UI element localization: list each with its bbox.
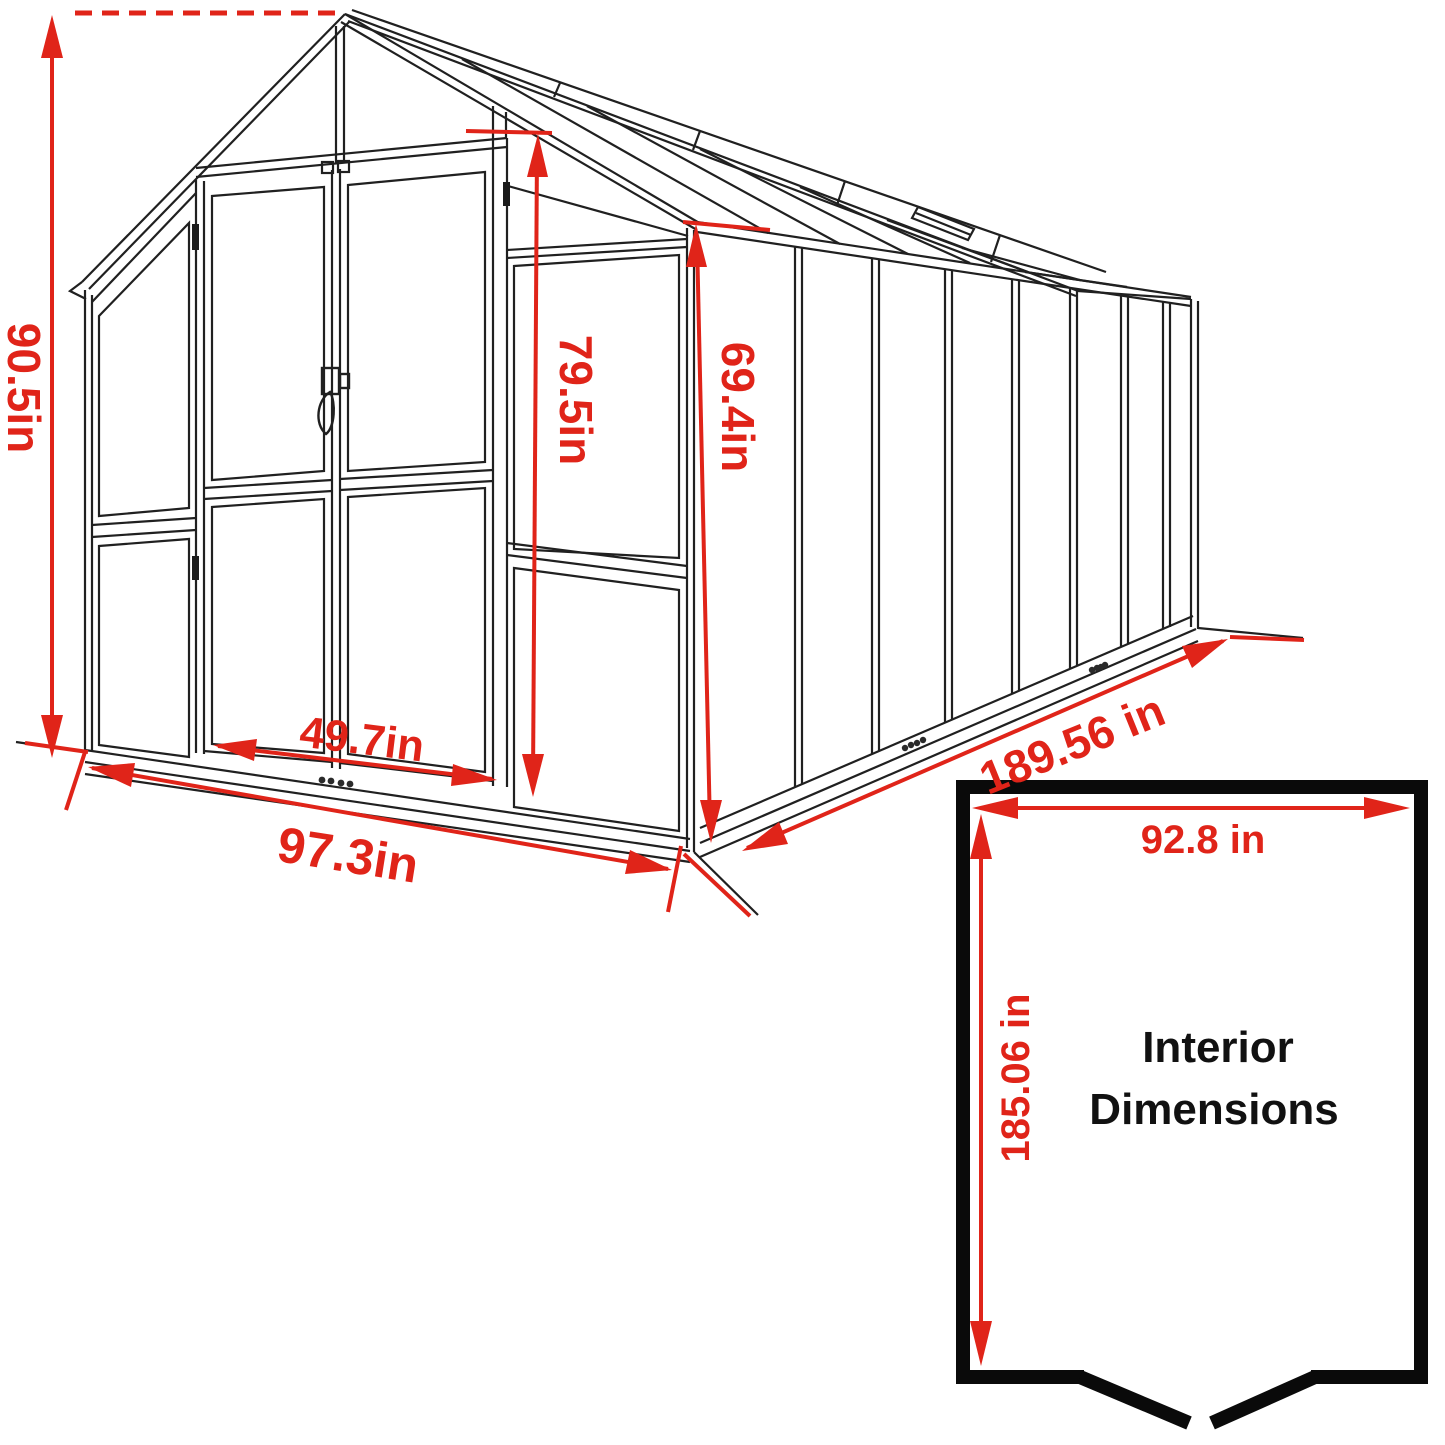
- dimension-label-interior-length: 185.06 in: [996, 993, 1036, 1162]
- door-hinges: [192, 182, 510, 580]
- greenhouse-line-drawing: [0, 0, 1445, 1445]
- dim-door-height: [466, 131, 552, 780]
- interior-dimension-lines: [981, 808, 1402, 1358]
- dimension-label-wall-height: 69.4in: [715, 342, 761, 472]
- greenhouse-dimension-diagram: 90.5in 79.5in 69.4in 49.7in 97.3in 189.5…: [0, 0, 1445, 1445]
- roof-ridge: [345, 10, 1191, 299]
- dimension-label-interior-width: 92.8 in: [1141, 820, 1266, 860]
- ground-lines: [16, 628, 1303, 915]
- dimension-label-overall-height: 90.5in: [1, 323, 47, 453]
- greenhouse-structure: [16, 10, 1303, 915]
- dim-wall-height: [683, 222, 770, 828]
- front-gable-roof: [70, 14, 701, 299]
- dimension-label-door-height: 79.5in: [553, 335, 599, 465]
- double-doors: [196, 138, 507, 787]
- interior-box-title-line1: Interior: [1142, 1023, 1294, 1073]
- interior-box-title-line2: Dimensions: [1089, 1085, 1338, 1135]
